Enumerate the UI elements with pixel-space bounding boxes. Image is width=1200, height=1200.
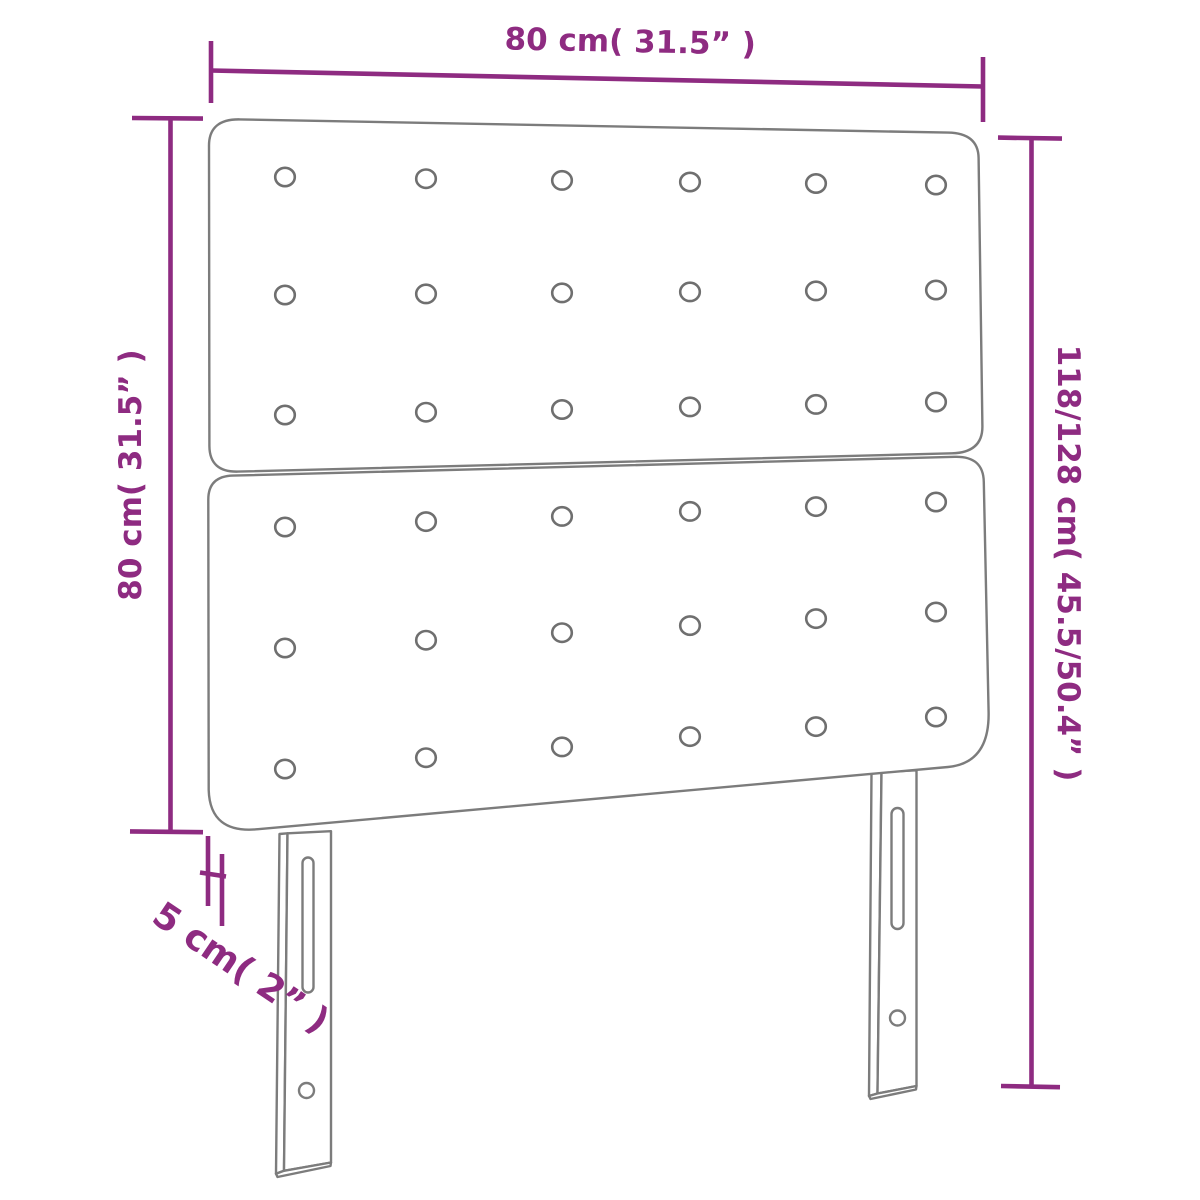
tufting-button bbox=[275, 518, 295, 536]
tufting-button bbox=[926, 281, 946, 299]
right-leg-slot bbox=[892, 808, 904, 929]
tufting-button bbox=[680, 502, 700, 520]
height-left-tick-bottom bbox=[130, 831, 203, 832]
tufting-button bbox=[926, 708, 946, 726]
headboard-dimension-diagram: 80 cm( 31.5” ) 80 cm( 31.5” ) 118/128 cm… bbox=[0, 0, 1200, 1200]
left-leg-slot bbox=[303, 858, 314, 993]
tufting-button bbox=[552, 284, 572, 302]
tufting-button bbox=[806, 174, 826, 192]
headboard-bottom-panel bbox=[208, 457, 988, 830]
tufting-button bbox=[552, 624, 572, 642]
tufting-button bbox=[680, 173, 700, 191]
tufting-button bbox=[680, 727, 700, 745]
tufting-button bbox=[806, 282, 826, 300]
top-panel-outline bbox=[209, 119, 982, 471]
left-leg-screw-hole bbox=[299, 1083, 314, 1098]
tufting-button bbox=[926, 176, 946, 194]
tufting-button bbox=[275, 406, 295, 424]
height-right-tick-top bbox=[998, 138, 1062, 139]
width-dimension-label: 80 cm( 31.5” ) bbox=[504, 21, 756, 62]
tufting-button bbox=[806, 609, 826, 627]
tufting-button bbox=[275, 286, 295, 304]
right-leg-screw-hole bbox=[890, 1011, 905, 1026]
tufting-button bbox=[275, 168, 295, 186]
diagram-canvas: 80 cm( 31.5” ) 80 cm( 31.5” ) 118/128 cm… bbox=[0, 0, 1200, 1200]
width-dimension: 80 cm( 31.5” ) bbox=[211, 21, 983, 122]
height-left-dimension: 80 cm( 31.5” ) bbox=[113, 118, 203, 832]
right-leg bbox=[869, 770, 917, 1099]
bottom-panel-outline bbox=[208, 457, 988, 830]
tufting-button bbox=[926, 603, 946, 621]
height-right-dimension: 118/128 cm( 45.5/50.4” ) bbox=[998, 138, 1086, 1088]
tufting-button bbox=[552, 400, 572, 418]
tufting-button bbox=[416, 512, 436, 530]
tufting-button bbox=[416, 403, 436, 421]
tufting-button bbox=[806, 395, 826, 413]
tufting-button bbox=[416, 631, 436, 649]
tufting-button bbox=[275, 760, 295, 778]
tufting-button bbox=[275, 639, 295, 657]
tufting-button bbox=[680, 616, 700, 634]
tufting-button bbox=[806, 717, 826, 735]
tufting-button bbox=[552, 738, 572, 756]
tufting-button bbox=[416, 749, 436, 767]
tufting-button bbox=[552, 507, 572, 525]
height-left-dimension-label: 80 cm( 31.5” ) bbox=[113, 349, 149, 600]
height-right-tick-bottom bbox=[1001, 1086, 1060, 1087]
tufting-button bbox=[926, 393, 946, 411]
height-right-dimension-label: 118/128 cm( 45.5/50.4” ) bbox=[1050, 345, 1086, 782]
tufting-button bbox=[552, 171, 572, 189]
tufting-button bbox=[806, 497, 826, 515]
tufting-button bbox=[926, 493, 946, 511]
tufting-button bbox=[416, 170, 436, 188]
headboard-top-panel bbox=[209, 119, 982, 471]
height-left-tick-top bbox=[132, 118, 203, 119]
width-dimension-line bbox=[211, 71, 983, 87]
tufting-button bbox=[680, 283, 700, 301]
tufting-button bbox=[680, 398, 700, 416]
tufting-button bbox=[416, 285, 436, 303]
